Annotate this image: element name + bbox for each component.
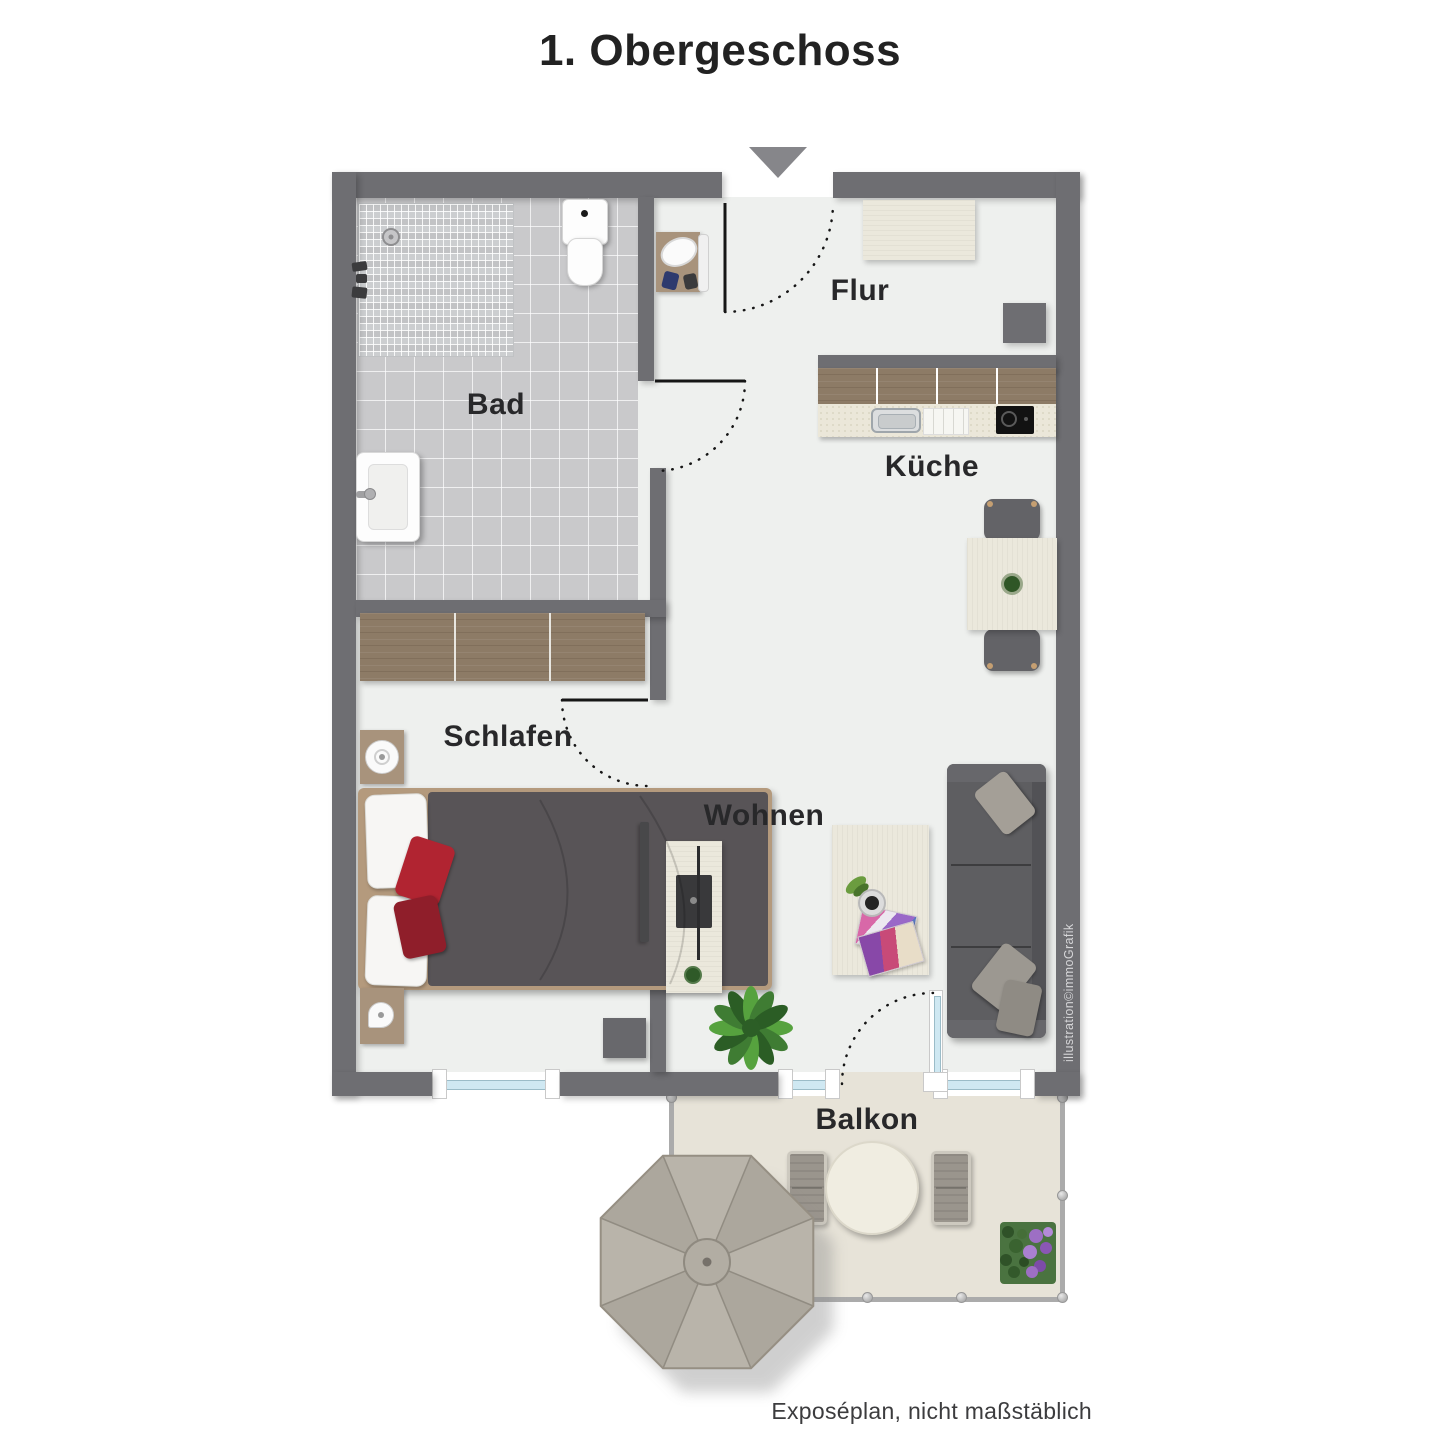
kitchen-drainboard	[923, 408, 969, 435]
dining-chair-bottom	[984, 629, 1040, 671]
window-living-left	[778, 1072, 840, 1096]
balcony-door-opening	[840, 1072, 933, 1096]
shower-area	[358, 203, 514, 357]
wardrobe	[360, 613, 645, 681]
bedroom-tv	[640, 822, 649, 942]
window-living-right	[933, 1072, 1035, 1096]
wall-bottom-1	[332, 1072, 432, 1096]
railing-post	[1057, 1190, 1068, 1201]
railing-post	[1057, 1292, 1068, 1303]
kitchen-sink	[871, 408, 921, 433]
room-label-kueche: Küche	[885, 450, 979, 484]
wall-bad-east	[638, 197, 654, 381]
cabinet-door	[998, 368, 1056, 404]
illustrator-credit: illustration©immoGrafik	[1062, 923, 1076, 1062]
ottoman	[603, 1018, 646, 1058]
railing-post	[956, 1292, 967, 1303]
window-glass	[791, 1080, 827, 1090]
balcony-chair-right	[931, 1151, 971, 1225]
dining-chair-top	[984, 499, 1040, 541]
hall-side-table	[656, 232, 700, 292]
wall-corridor-upper	[650, 468, 666, 700]
bedside-lamp-bottom	[368, 1002, 394, 1028]
hall-cabinet	[863, 200, 975, 260]
wall-left	[332, 172, 356, 1096]
floorplan-canvas: 1. Obergeschoss	[0, 0, 1440, 1440]
balcony-door-leaf	[929, 990, 943, 1076]
railing-left	[669, 1096, 674, 1302]
window-bedroom	[432, 1072, 560, 1096]
duct-shaft	[1003, 303, 1046, 343]
toilet-bowl	[567, 238, 603, 286]
window-glass	[946, 1080, 1022, 1090]
window-glass	[445, 1080, 547, 1090]
room-label-balkon: Balkon	[815, 1103, 918, 1137]
sideboard-plant-pot	[684, 966, 702, 984]
room-label-wohnen: Wohnen	[704, 799, 825, 833]
room-label-schlafen: Schlafen	[443, 720, 572, 754]
wall-bottom-2	[560, 1072, 778, 1096]
room-label-bad: Bad	[467, 388, 525, 422]
disclaimer-text: Exposéplan, nicht maßstäblich	[771, 1398, 1092, 1425]
balcony-door-hinge	[923, 1072, 948, 1092]
toilet-button	[581, 210, 588, 217]
sink-faucet-knob	[364, 488, 376, 500]
wall-top-left	[332, 172, 722, 198]
railing-post	[666, 1292, 677, 1303]
hall-radiator	[698, 234, 709, 292]
kitchen-upper-cabinets	[818, 368, 1056, 404]
tv-screen	[697, 846, 700, 960]
cooktop	[996, 406, 1034, 434]
tv-console	[676, 875, 712, 928]
cabinet-door	[938, 368, 996, 404]
dining-table-plant	[1001, 573, 1023, 595]
cabinet-door	[878, 368, 936, 404]
room-label-flur: Flur	[831, 274, 890, 308]
page-title: 1. Obergeschoss	[0, 26, 1440, 76]
wall-bottom-3	[1035, 1072, 1080, 1096]
railing-post	[862, 1292, 873, 1303]
bedside-lamp-top	[365, 740, 399, 774]
balcony-table	[825, 1141, 919, 1235]
wall-top-right	[833, 172, 1080, 198]
cabinet-door	[818, 368, 876, 404]
balcony-chair-left	[787, 1151, 827, 1225]
entry-arrow-icon	[749, 147, 807, 178]
